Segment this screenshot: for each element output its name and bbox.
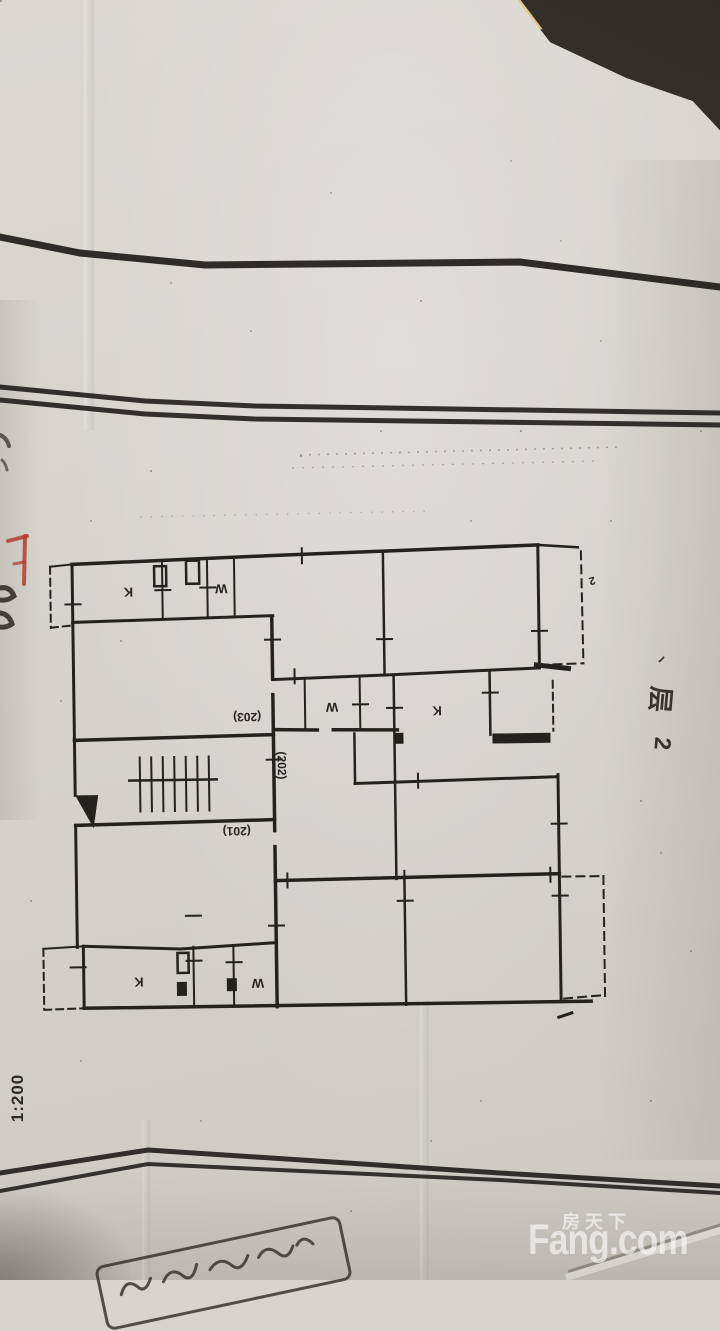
edge-scribbles — [0, 435, 14, 627]
unit-number-201: (201) — [223, 824, 251, 838]
watermark-logo: Fang.com — [528, 1216, 688, 1265]
floor-note-char: 丶 — [652, 652, 672, 667]
room-label-k-bottom: K — [133, 974, 143, 989]
handwritten-corner-mark: 2 — [587, 574, 596, 587]
unit-number-202: (202) — [275, 751, 289, 779]
photographed-floorplan-page: { "watermark": {"brand_cn": "房天下", "bran… — [0, 0, 720, 1280]
staircase — [128, 755, 219, 812]
floor-note-char: 层 — [642, 685, 681, 714]
room-label-w-top: W — [214, 581, 227, 596]
scale-label: 1:200 — [8, 1048, 28, 1148]
room-label-w-mid: W — [325, 700, 338, 715]
room-label-k-top: K — [123, 585, 133, 600]
room-label-w-bottom: W — [251, 976, 264, 991]
room-label-k-mid: K — [432, 703, 442, 718]
solid-marks — [74, 731, 554, 998]
construction-dotted-lines — [140, 447, 620, 517]
floor-plan: K W W K K W (203) (202) (201) 2 — [15, 524, 622, 1032]
walls — [38, 544, 605, 1010]
pencil-tick-mark — [557, 1012, 573, 1017]
unit-number-203: (203) — [233, 710, 261, 724]
floor-note-char: 2 — [648, 736, 676, 751]
handwritten-floor-note: 丶 层 2 — [632, 650, 692, 757]
window-ticks — [64, 544, 570, 968]
